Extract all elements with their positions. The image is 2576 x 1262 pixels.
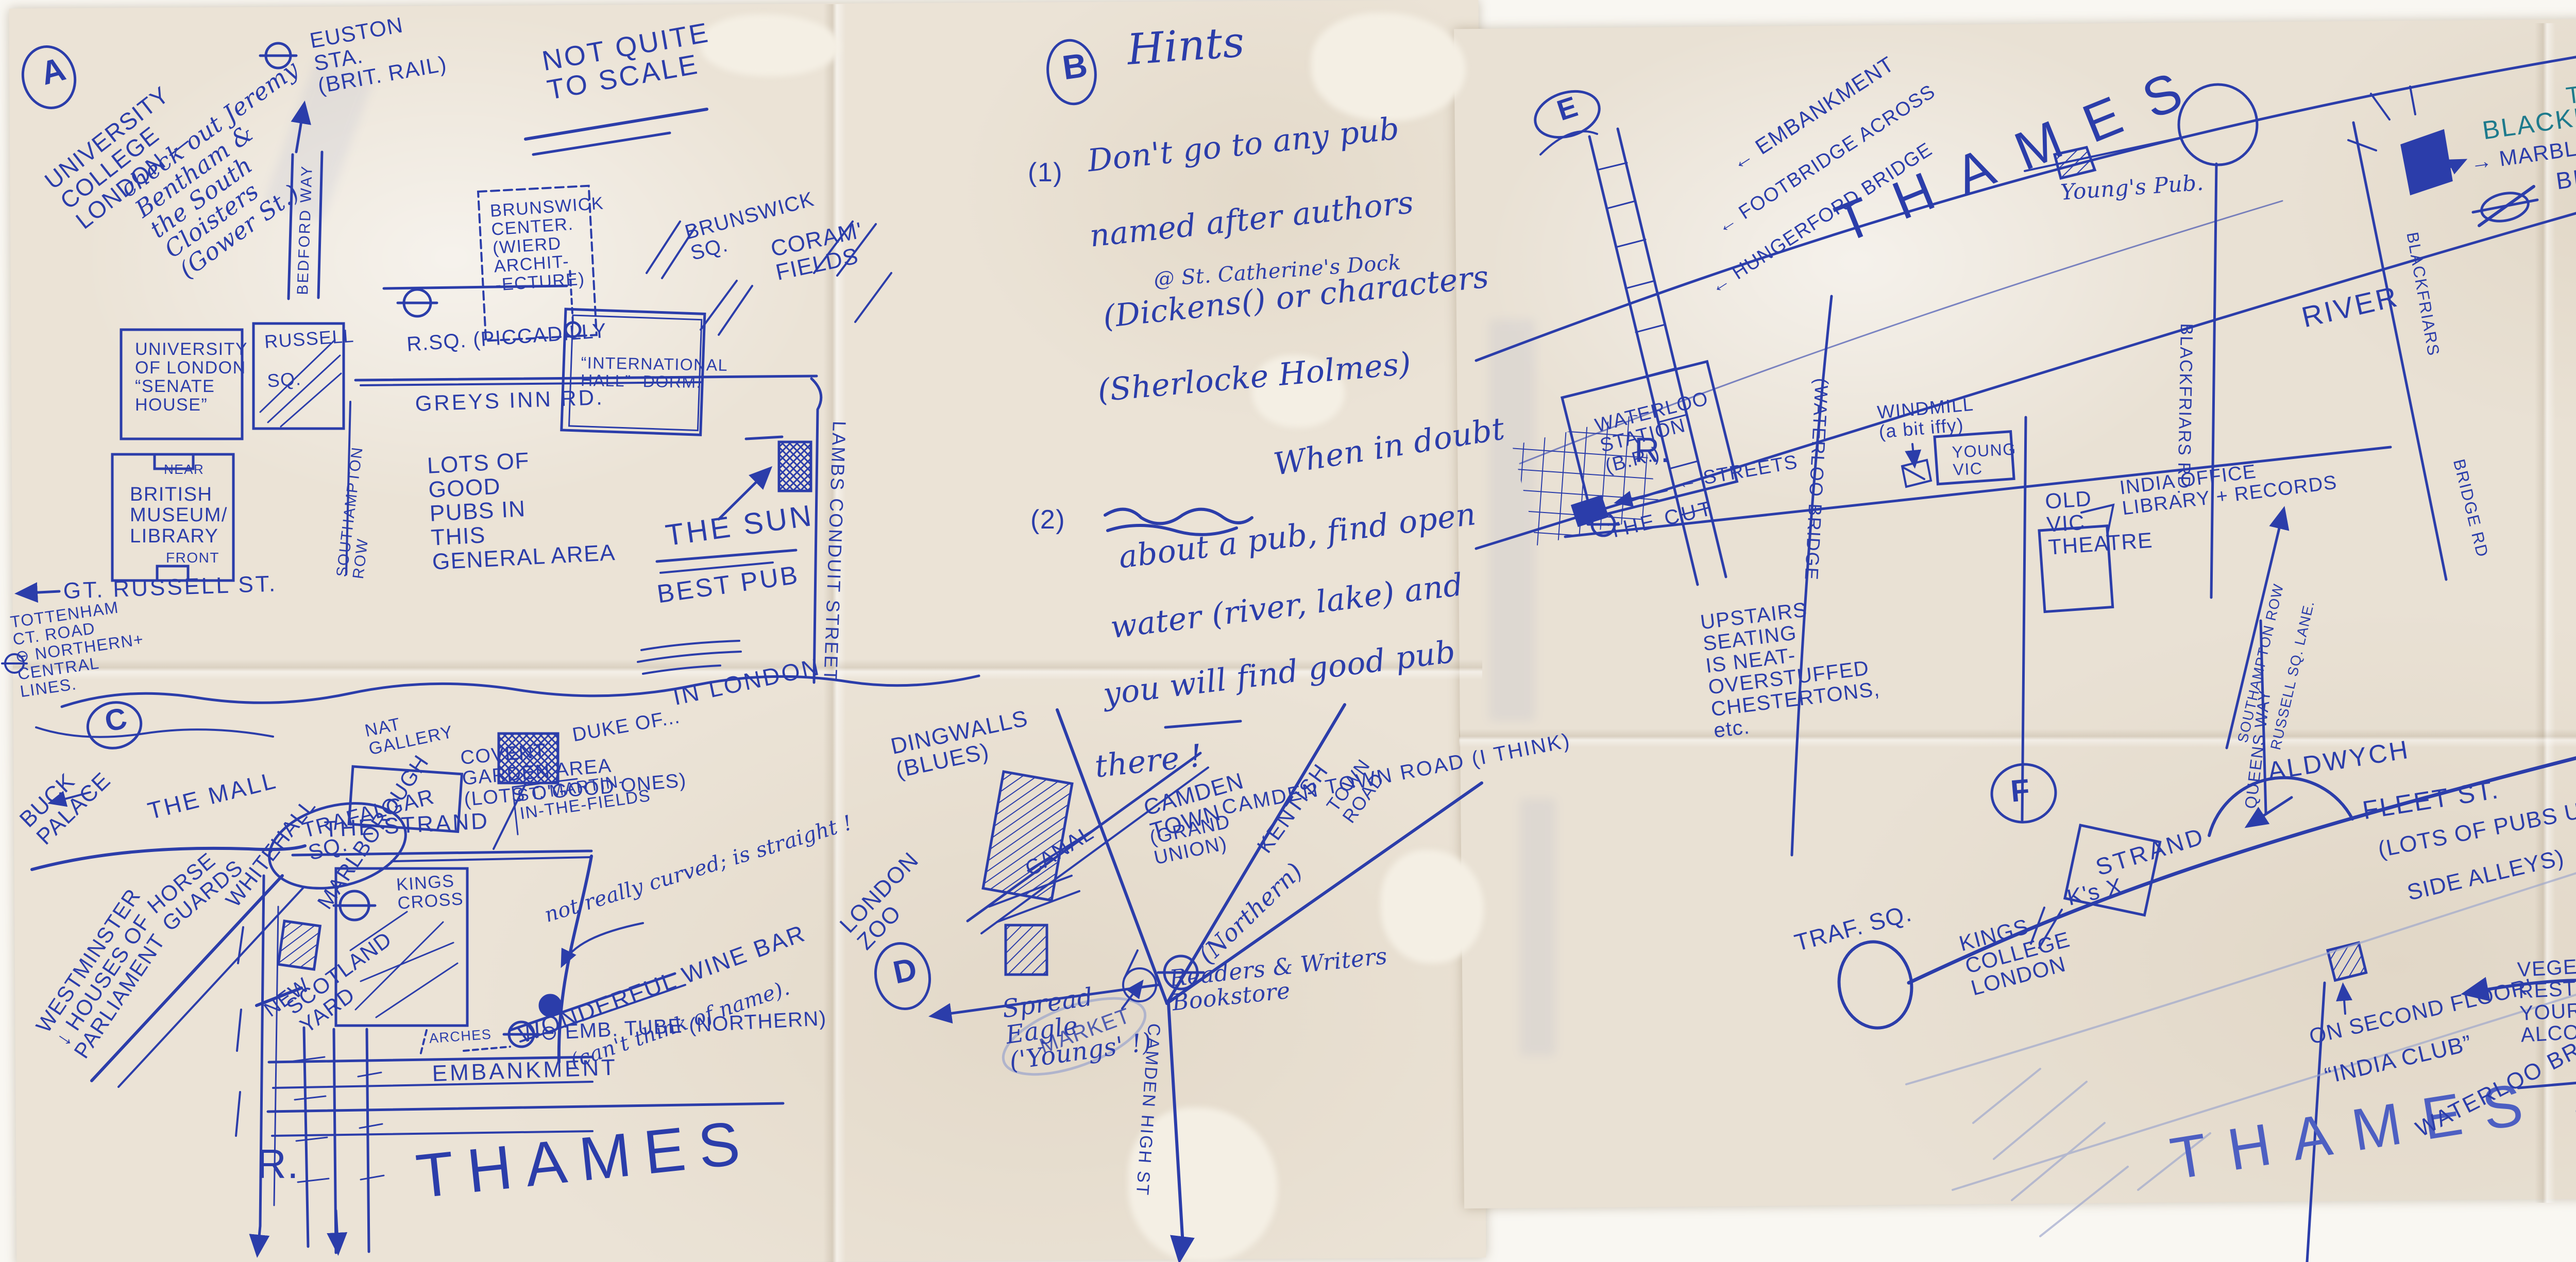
kings-cross-label: KINGS CROSS bbox=[396, 871, 464, 913]
brunswick-center-label: BRUNSWICK CENTER. (WIERD ARCHIT- -ECTURE… bbox=[489, 194, 609, 295]
the-sun-pub-marker bbox=[779, 442, 811, 491]
blackfriars-rd-road bbox=[2211, 164, 2216, 598]
traf-sq-circle-f bbox=[1832, 936, 1918, 1034]
windmill-arrow bbox=[1912, 444, 1914, 465]
river-r-label: R. bbox=[257, 1142, 299, 1186]
windmill-pub-glyph bbox=[1902, 460, 1931, 487]
senate-house-label: UNIVERSITY OF LONDON “SENATE HOUSE” bbox=[135, 340, 248, 414]
river-divider-wave-2 bbox=[36, 727, 273, 737]
lots-of-pubs-label: LOTS OF GOOD PUBS IN THIS GENERAL AREA bbox=[427, 445, 616, 574]
hint1-number: (1) bbox=[1028, 159, 1063, 187]
not-to-scale-underline bbox=[526, 109, 707, 155]
marlborough-pub-marker bbox=[278, 921, 320, 969]
russell-sq-tube-icon bbox=[398, 289, 437, 316]
west-river-edge bbox=[236, 876, 278, 1253]
windmill-label: WINDMILL (a bit iffy) bbox=[1876, 395, 1976, 442]
blackfriars-tube-crossed-icon bbox=[2473, 186, 2537, 226]
gt-russell-arrow bbox=[20, 591, 59, 593]
section-f-label: F bbox=[2009, 774, 2032, 808]
map-stage: A EUSTON STA. (BRIT. RAIL) NOT QUITE TO … bbox=[0, 0, 2576, 1262]
will-underline bbox=[1165, 721, 1241, 727]
spread-eagle-pub-marker bbox=[1006, 925, 1047, 975]
oldvic-cross-road bbox=[2022, 417, 2026, 820]
section-b-label: B bbox=[1060, 47, 1090, 86]
scanned-map: { "a": { "section": "A", "euston": "EUST… bbox=[0, 0, 2576, 1262]
best-pub-underline bbox=[638, 641, 741, 674]
upstairs-label: UPSTAIRS SEATING IS NEAT- OVERSTUFFED CH… bbox=[1699, 591, 1884, 742]
russell-sq-label: RUSSELL SQ. bbox=[264, 326, 358, 391]
young-vic-label: YOUNG VIC bbox=[1952, 440, 2018, 479]
museum-near-label: NEAR bbox=[164, 463, 204, 477]
hints-title: Hints bbox=[1126, 20, 1246, 73]
river-divider-wave bbox=[62, 676, 979, 707]
tottenham-label: TOTTENHAM CT. ROAD ⊖ NORTHERN+ CENTRAL L… bbox=[9, 596, 150, 701]
aldwych-crescent bbox=[2209, 778, 2352, 835]
vegetarian-label: VEGETARIAN INDIAN REST.; TAKE YOUR OWN A… bbox=[2517, 948, 2576, 1047]
india-club-pub-marker bbox=[2328, 943, 2366, 980]
museum-label: BRITISH MUSEUM/ LIBRARY bbox=[130, 484, 228, 547]
museum-front-label: FRONT bbox=[166, 550, 219, 566]
hint2-number: (2) bbox=[1030, 506, 1065, 534]
india-club-arrow bbox=[2343, 986, 2345, 1014]
